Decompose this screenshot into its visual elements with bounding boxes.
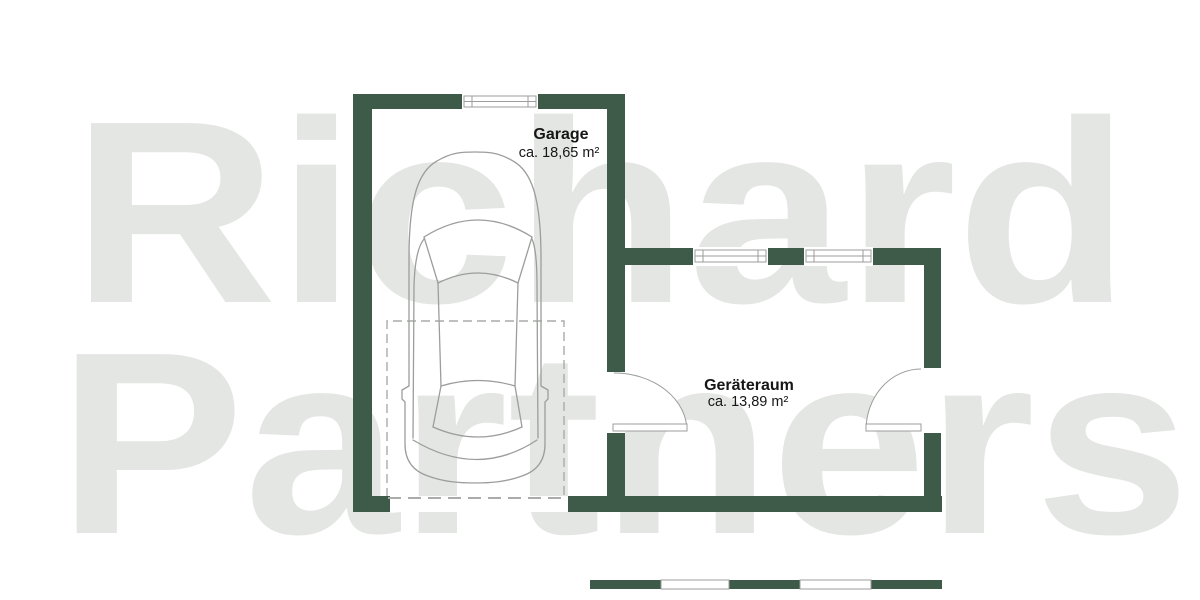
room-area-garage: ca. 18,65 m² [519,145,600,161]
door-gap [924,368,941,433]
door-leaf [613,424,687,431]
door-leaf [866,424,921,431]
wall-garage-bottom-stub [353,496,390,512]
window-gap [800,580,871,589]
garage-door-opening [388,496,568,512]
window-garage-top [462,93,538,110]
wall-geraeteraum-right-upper [924,248,941,368]
window-gap [661,580,729,589]
floorplan-canvas: Richard Partners [0,0,1200,600]
floorplan-drawing: Richard Partners [0,0,1200,600]
window-geraeteraum-left [693,247,768,266]
room-area-geraeteraum: ca. 13,89 m² [708,394,789,410]
wall-segment [590,580,942,589]
room-label-garage: Garage [533,126,588,143]
bottom-building-wall [590,580,942,589]
room-label-geraeteraum: Geräteraum [704,377,794,394]
wall-bottom [568,496,942,512]
wall-garage-left [353,94,372,512]
wall-middle-upper [607,94,625,372]
wall-geraeteraum-top [607,248,941,265]
window-geraeteraum-right [804,247,873,266]
